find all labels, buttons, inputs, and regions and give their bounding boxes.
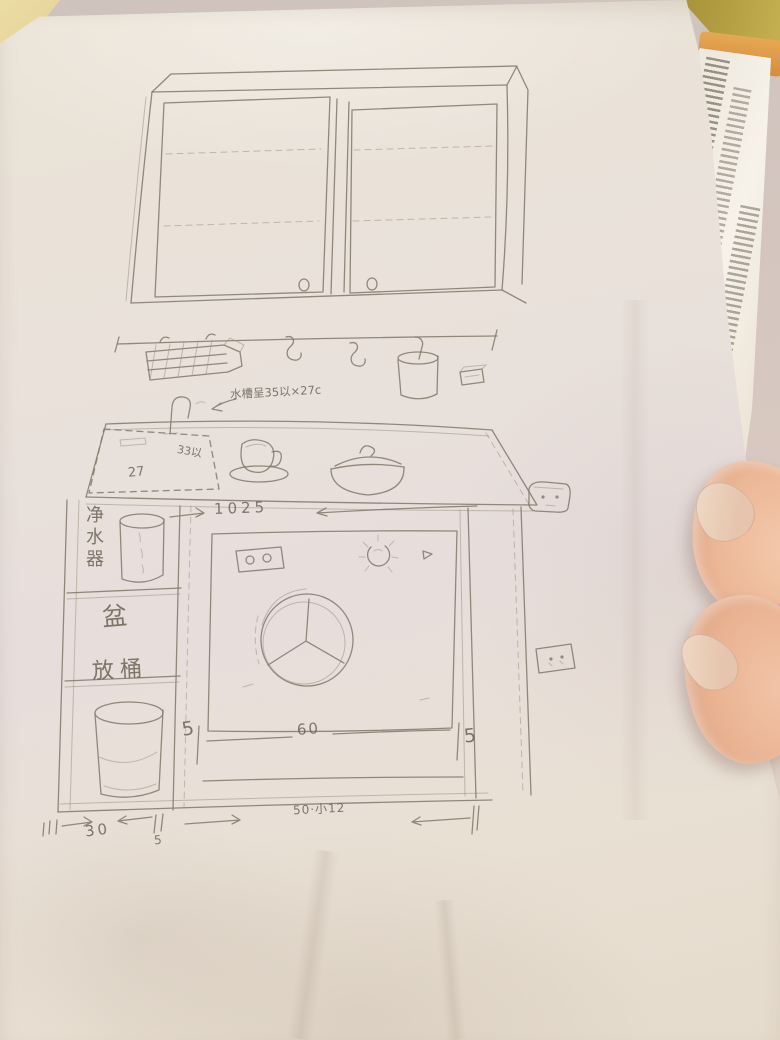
- washer-door-sketch: [255, 589, 353, 686]
- counter-sketch: [86, 397, 537, 511]
- door-knob-icon: [367, 278, 377, 290]
- washer-control-panel-sketch: [236, 547, 284, 572]
- wall-cabinet-sketch: [126, 66, 528, 303]
- power-socket-sketch: [529, 482, 570, 512]
- label-basin: 盆: [101, 603, 128, 630]
- photo-of-sketch: 水槽呈35以×27c 33以 27 1025 60 5 5 30 5 50·小1…: [0, 0, 780, 1040]
- sink-sketch: [89, 429, 219, 493]
- washing-machine-sketch: [208, 531, 457, 732]
- annotation-column-width: 30: [84, 822, 111, 840]
- base-cabinet-sketch: [58, 500, 531, 812]
- door-knob-icon: [299, 279, 309, 291]
- annotation-bottom-width: 50·小12: [293, 802, 346, 817]
- hanging-cup-sketch: [398, 337, 438, 399]
- s-hook-sketch: [350, 343, 365, 367]
- annotation-divider-width: 5: [153, 834, 162, 847]
- label-water-purifier: 净水器: [84, 505, 102, 595]
- annotation-washer-width: 60: [296, 721, 320, 738]
- water-purifier-sketch: [120, 514, 164, 582]
- annotation-gap-right: 5: [463, 726, 477, 746]
- label-bucket: 放桶: [91, 659, 148, 684]
- cup-and-saucer-sketch: [230, 440, 288, 482]
- lidded-bowl-sketch: [331, 446, 404, 495]
- small-box-sketch: [460, 365, 486, 385]
- annotation-sink-depth: 27: [127, 465, 145, 480]
- bucket-sketch: [95, 702, 163, 797]
- washer-indicator-sketch: [423, 551, 432, 559]
- washer-dial-sketch: [359, 535, 398, 572]
- power-socket-sketch: [536, 644, 575, 673]
- pencil-sketch: [0, 0, 780, 1040]
- annotation-counter-width: 1025: [214, 500, 269, 517]
- s-hook-sketch: [286, 337, 301, 361]
